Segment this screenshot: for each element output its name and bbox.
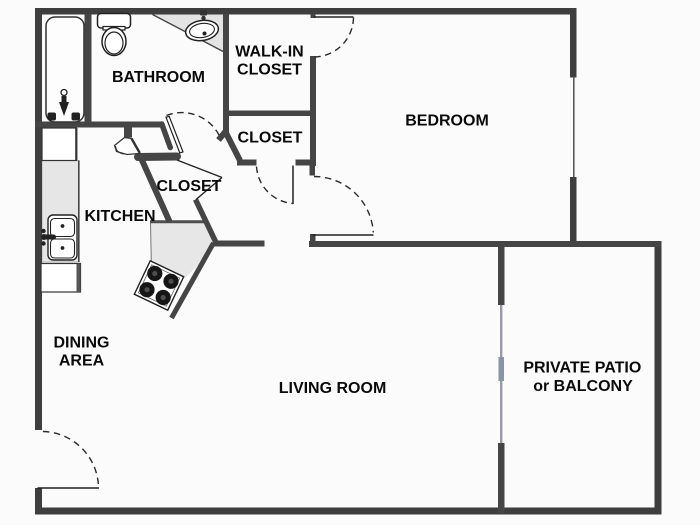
svg-text:LIVING ROOM: LIVING ROOM: [279, 380, 387, 397]
svg-text:DINING: DINING: [54, 335, 110, 352]
svg-text:WALK-IN: WALK-IN: [235, 44, 303, 61]
svg-text:CLOSET: CLOSET: [238, 130, 303, 147]
svg-text:AREA: AREA: [59, 353, 105, 370]
svg-text:or BALCONY: or BALCONY: [533, 378, 633, 395]
svg-text:BEDROOM: BEDROOM: [405, 112, 489, 129]
svg-text:KITCHEN: KITCHEN: [84, 208, 155, 225]
svg-text:PRIVATE PATIO: PRIVATE PATIO: [523, 359, 641, 376]
svg-text:BATHROOM: BATHROOM: [112, 69, 205, 86]
svg-text:CLOSET: CLOSET: [157, 178, 222, 195]
svg-text:CLOSET: CLOSET: [237, 62, 302, 79]
